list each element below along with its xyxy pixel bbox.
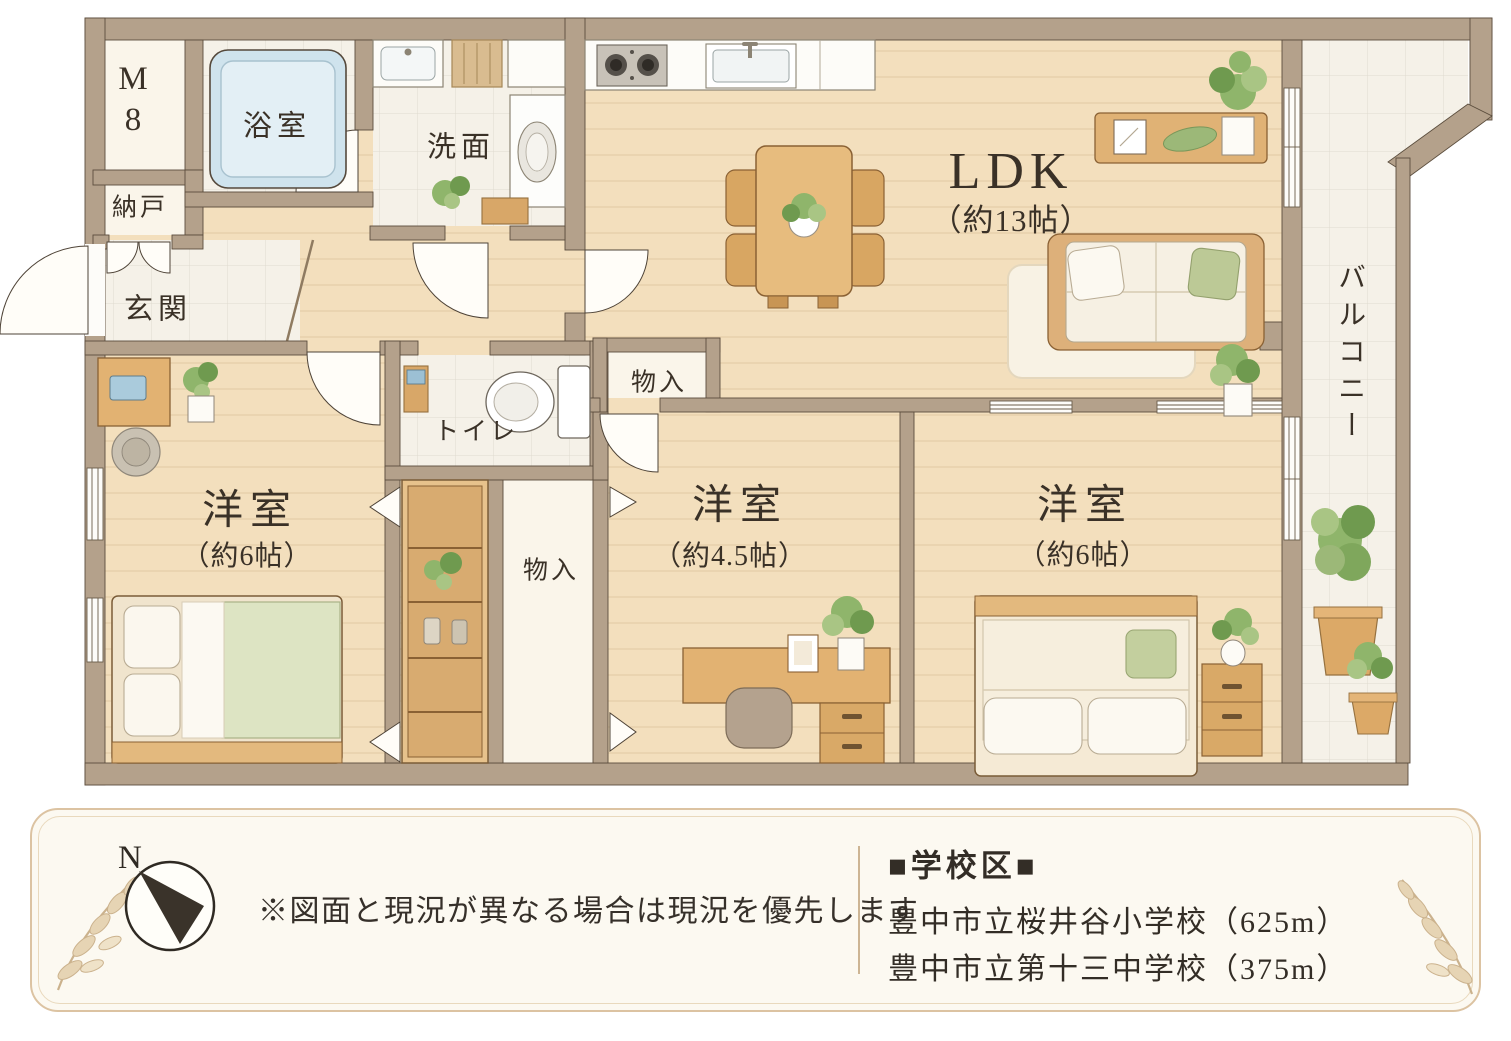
room-size-bedroom-right: （約6帖） <box>1017 540 1148 572</box>
sofa-pillow-green <box>1187 247 1240 300</box>
room-label-closet-top: 物入 <box>631 370 687 399</box>
sheet-fold <box>182 602 224 738</box>
sofa <box>1048 234 1264 350</box>
green-cushion <box>1126 630 1176 678</box>
room-size-bedroom-left: （約6帖） <box>181 541 312 573</box>
room-label-ldk: LDK <box>949 142 1074 202</box>
room-label-naando: 納戸 <box>112 195 168 224</box>
floor-plan: M 8 浴室 洗面 納戸 玄関 トイレ 物入 物入 LDK （約13帖） 洋室 … <box>0 0 1511 800</box>
green-blanket <box>222 602 340 738</box>
bed-pillow-2 <box>1088 698 1186 754</box>
info-divider <box>858 846 860 974</box>
window-ldk-balcony <box>1284 88 1300 207</box>
kitchen-sink <box>706 42 796 88</box>
room-label-bath: 浴室 <box>243 110 311 143</box>
pillow-2 <box>124 674 180 736</box>
desk-plant-pot <box>188 396 214 422</box>
room-label-balcony: バルコニー <box>1333 263 1365 448</box>
kitchen-counter <box>585 40 875 90</box>
washing-machine <box>510 95 565 207</box>
shelf-jar-2 <box>452 620 467 644</box>
entrance-door <box>0 246 88 334</box>
desk-plant-pot-2 <box>838 638 864 670</box>
vase <box>1221 640 1245 666</box>
pillow-1 <box>124 606 180 668</box>
bedroom-left-bed <box>112 596 342 763</box>
laundry-basket <box>452 40 502 87</box>
school-district-item: 豊中市立第十三中学校（375m） <box>888 944 1348 988</box>
window-left-1 <box>87 468 103 540</box>
shelf-jar-1 <box>424 618 440 644</box>
window-bedroom-balcony <box>1284 417 1300 540</box>
open-shelf-unit <box>402 480 488 763</box>
leaf-decoration-right <box>1390 852 1490 1002</box>
room-label-toilet: トイレ <box>434 419 518 448</box>
bedroom-right-bed <box>975 596 1197 776</box>
school-district-item: 豊中市立桜井谷小学校（625m） <box>888 897 1348 941</box>
room-label-entrance: 玄関 <box>124 293 192 326</box>
desk-chair <box>726 688 792 748</box>
room-label-washroom: 洗面 <box>427 131 495 164</box>
sliding-door-ldk-bedroom-2 <box>1157 401 1282 413</box>
washroom-sink <box>373 40 443 87</box>
photo-frame <box>1114 120 1146 154</box>
disclaimer-note: ※図面と現況が異なる場合は現況を優先します <box>258 886 920 930</box>
room-label-closet-bottom: 物入 <box>523 558 579 587</box>
sliding-door-ldk-bedroom-1 <box>990 401 1072 413</box>
sofa-pillow-white <box>1067 245 1125 302</box>
room-label-bedroom-middle: 洋室 <box>692 481 788 528</box>
closet-bottom-floor <box>503 480 593 763</box>
school-district-title: ■学校区■ <box>888 841 1038 886</box>
headboard <box>975 596 1197 616</box>
room-label-bedroom-left: 洋室 <box>202 486 298 533</box>
room-label-m8: M 8 <box>118 59 147 142</box>
bed-pillow-1 <box>984 698 1082 754</box>
laptop <box>110 376 146 400</box>
room-label-bedroom-right: 洋室 <box>1037 481 1133 528</box>
washroom-cabinet <box>508 40 565 87</box>
shelf-plant-pot <box>1222 117 1254 155</box>
page: M 8 浴室 洗面 納戸 玄関 トイレ 物入 物入 LDK （約13帖） 洋室 … <box>0 0 1511 1041</box>
north-label: N <box>118 840 142 877</box>
window-left-2 <box>87 598 103 662</box>
floor-plan-drawing <box>0 0 1511 800</box>
room-size-bedroom-middle: （約4.5帖） <box>653 541 807 573</box>
room-size-ldk: （約13帖） <box>931 203 1092 239</box>
